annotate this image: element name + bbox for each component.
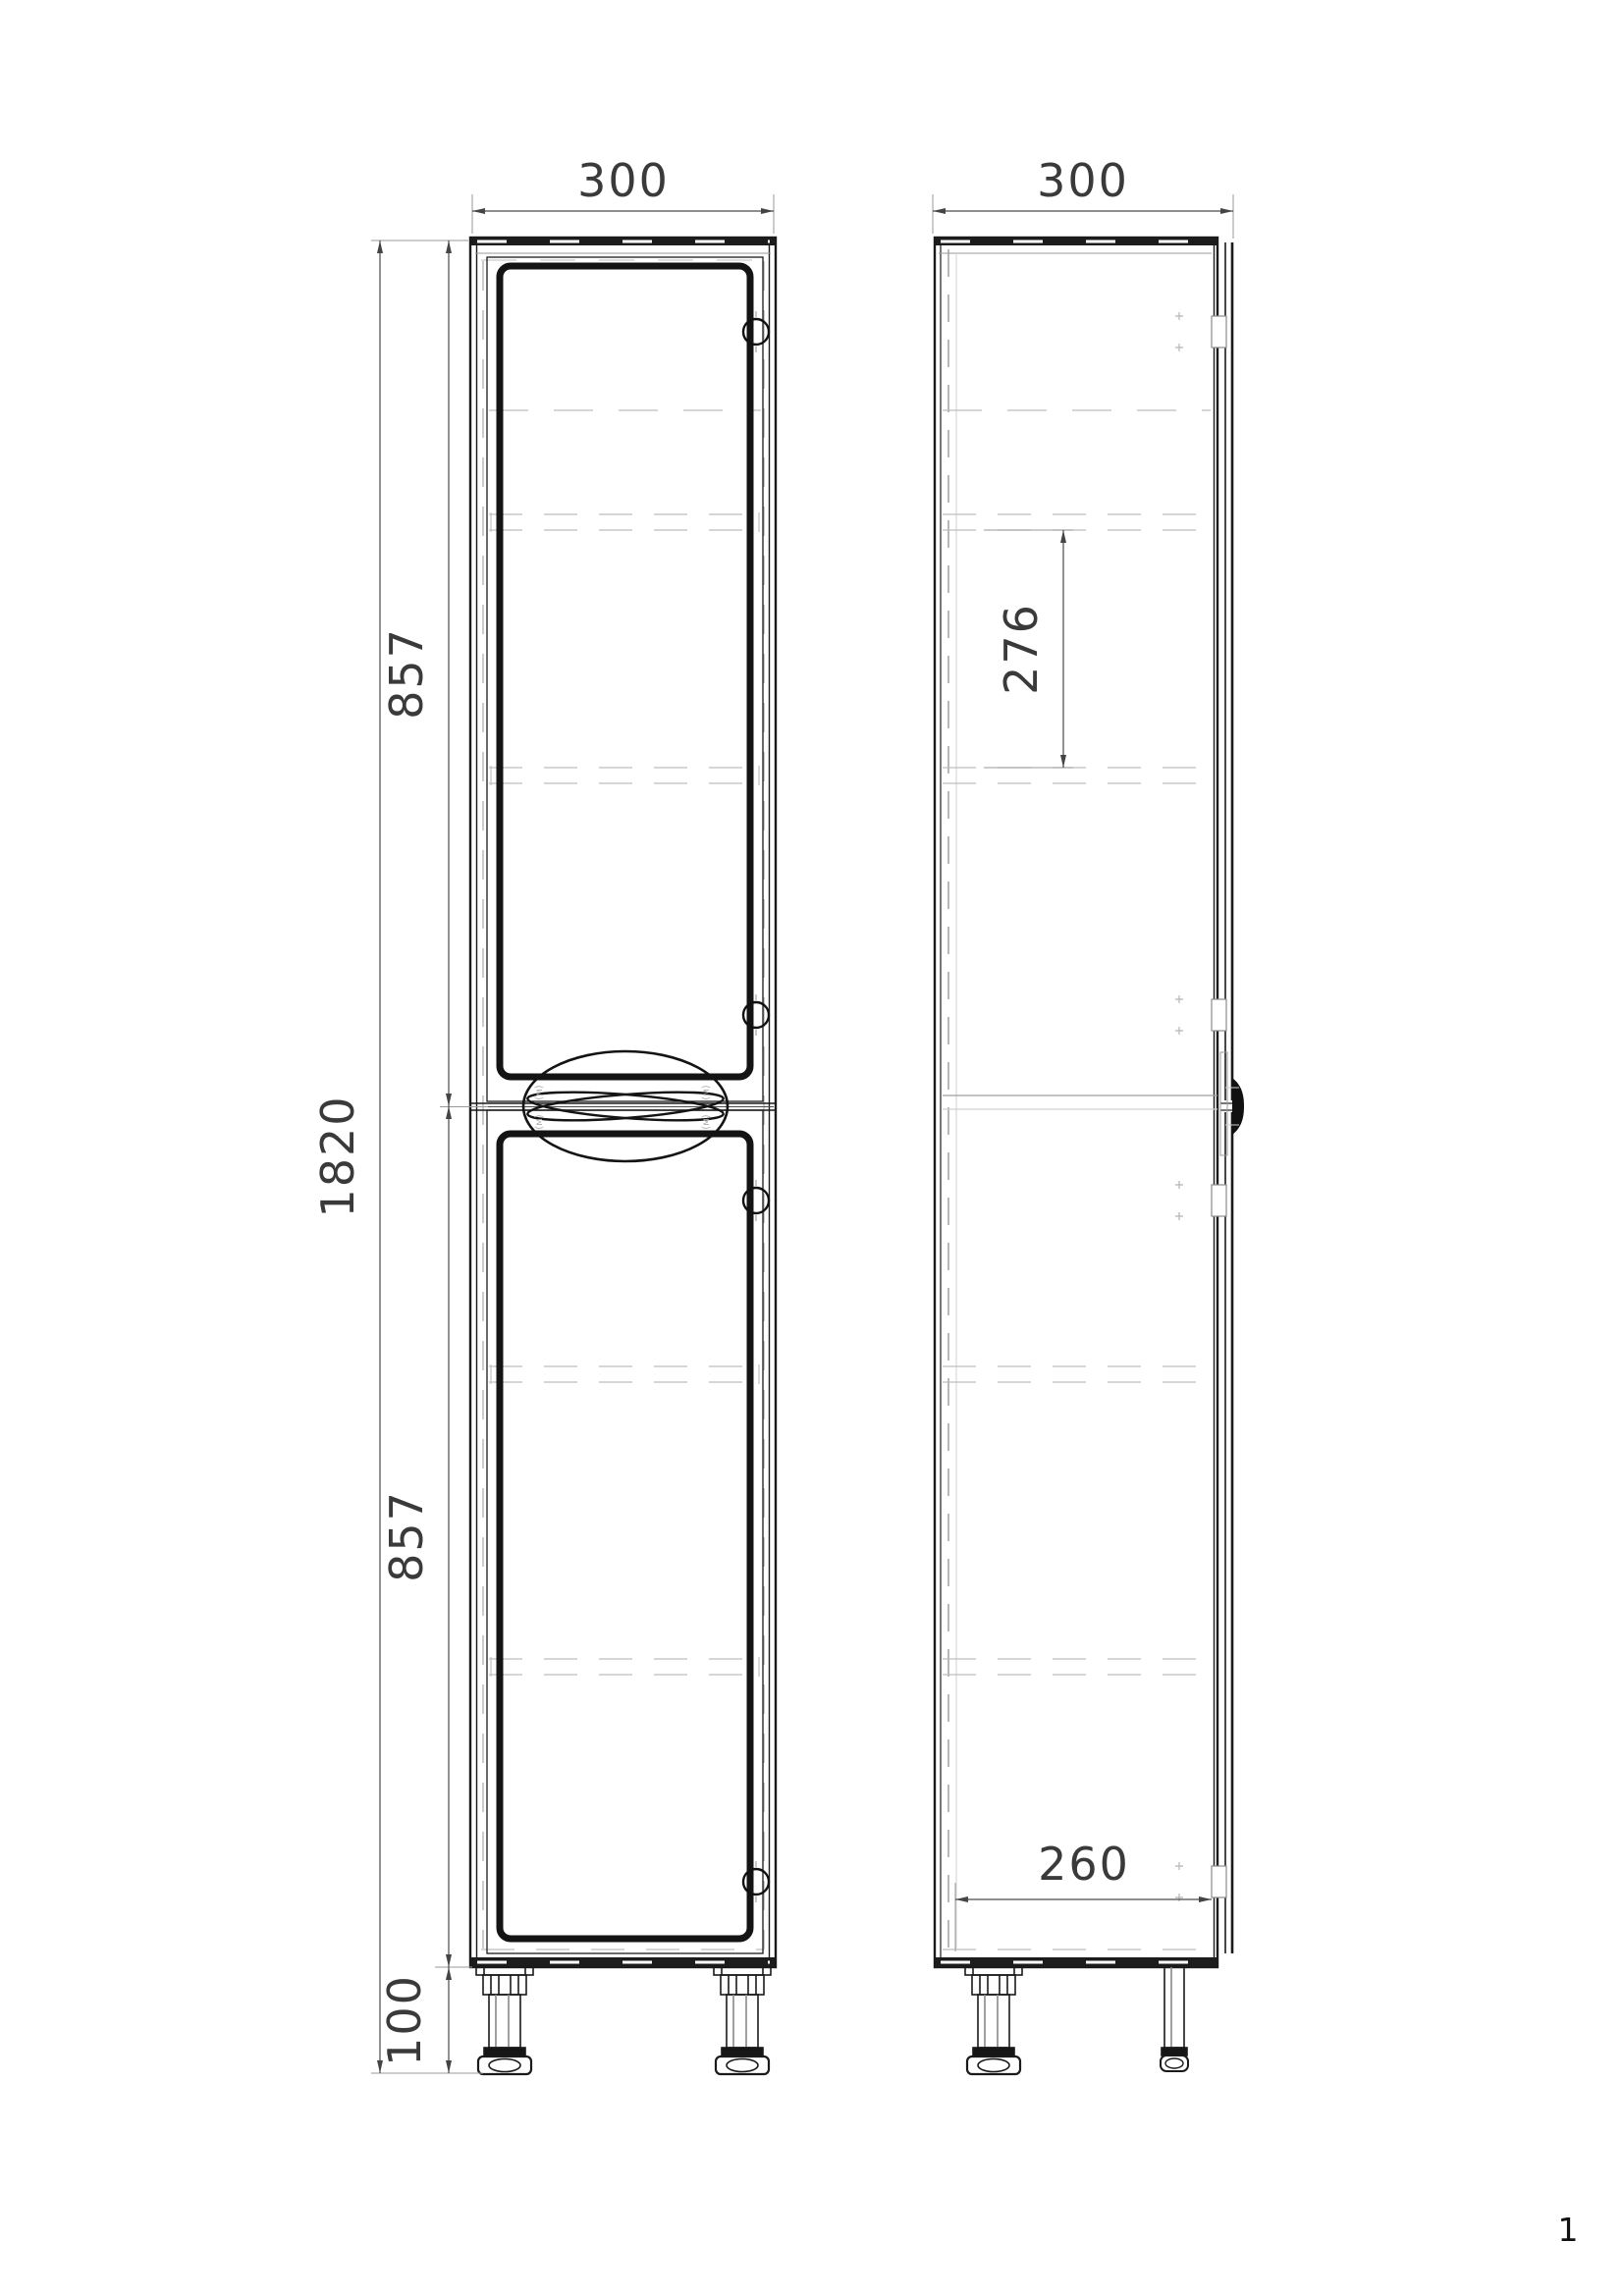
side-rear-leg	[1161, 1967, 1188, 2071]
dim-leg-height: 100	[378, 1967, 449, 2073]
cabinet-technical-drawing: (м) (м) (м) (м)	[0, 0, 1623, 2296]
dimension-label-side-depth: 300	[1037, 154, 1129, 207]
side-front-leg	[965, 1967, 1022, 2074]
dimension-label-lower-section: 857	[380, 1490, 433, 1582]
front-right-leg	[714, 1967, 771, 2074]
front-dimensions: 300 1820 857 857 100	[311, 154, 774, 2073]
dimension-label-front-width: 300	[577, 154, 670, 207]
handle-mark: (м)	[701, 1114, 712, 1129]
dimension-label-upper-section: 857	[380, 627, 433, 720]
dim-shelf-spacing: 276	[984, 530, 1073, 768]
side-view	[935, 238, 1244, 2074]
side-carcass	[935, 238, 1217, 1967]
dim-upper-section: 857	[380, 240, 449, 1106]
side-dimensions: 300 276 260	[933, 154, 1233, 1951]
side-shelf-lines	[943, 410, 1217, 1675]
handle-mark: (м)	[534, 1114, 545, 1129]
dimension-label-interior-depth: 260	[1038, 1838, 1130, 1891]
page-number: 1	[1558, 2211, 1579, 2249]
front-upper-door	[487, 257, 763, 1101]
dimension-label-total-height: 1820	[311, 1095, 364, 1217]
front-left-leg	[476, 1967, 533, 2074]
dim-lower-section: 857	[380, 1106, 449, 1967]
dim-total-height: 1820	[311, 240, 380, 2073]
front-view: (м) (м) (м) (м)	[470, 238, 776, 2074]
drawing-page: (м) (м) (м) (м)	[0, 0, 1623, 2296]
front-door-split	[470, 1103, 776, 1110]
dim-interior-depth: 260	[955, 1838, 1212, 1951]
dimension-label-leg-height: 100	[378, 1974, 431, 2066]
handle-mark: (м)	[701, 1085, 712, 1099]
handle-mark: (м)	[534, 1085, 545, 1099]
front-carcass	[470, 238, 776, 1967]
front-shelf-lines	[489, 410, 761, 1677]
front-lower-door	[487, 1110, 763, 1953]
dim-side-depth: 300	[933, 154, 1233, 239]
dimension-label-shelf-spacing: 276	[995, 603, 1048, 695]
dim-front-width: 300	[472, 154, 774, 234]
